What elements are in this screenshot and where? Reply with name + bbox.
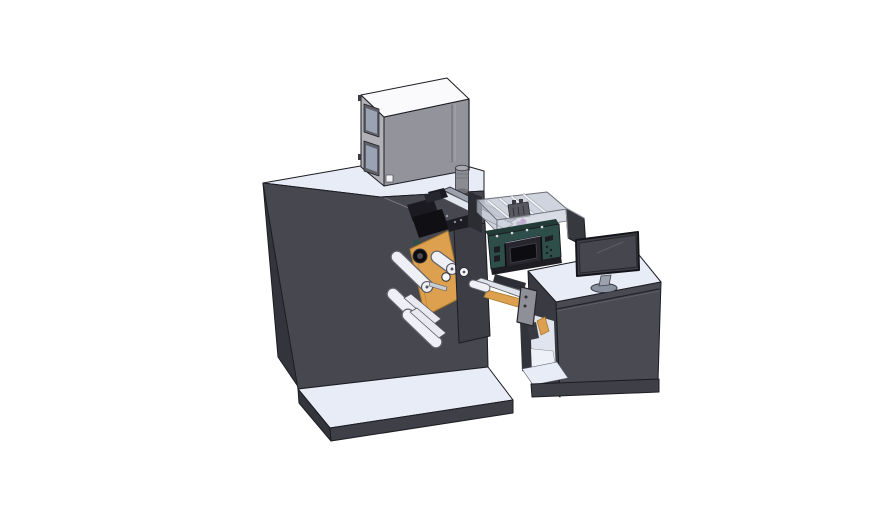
cabinet-window-lower: [364, 141, 379, 176]
feeder-top-cabinet: [358, 78, 469, 186]
stand-neck: [599, 275, 611, 286]
cabinet-window-upper: [364, 104, 379, 137]
cad-render-canvas: [0, 0, 888, 522]
cabinet-latch-square: [386, 175, 393, 182]
exhaust-cylinder: [456, 165, 469, 193]
plate-edge-hole: [442, 273, 450, 281]
cad-scene: [0, 0, 888, 522]
desk-monitor[interactable]: [576, 232, 639, 276]
sensor-bracket: [517, 287, 537, 326]
tension-knob: [413, 249, 427, 263]
